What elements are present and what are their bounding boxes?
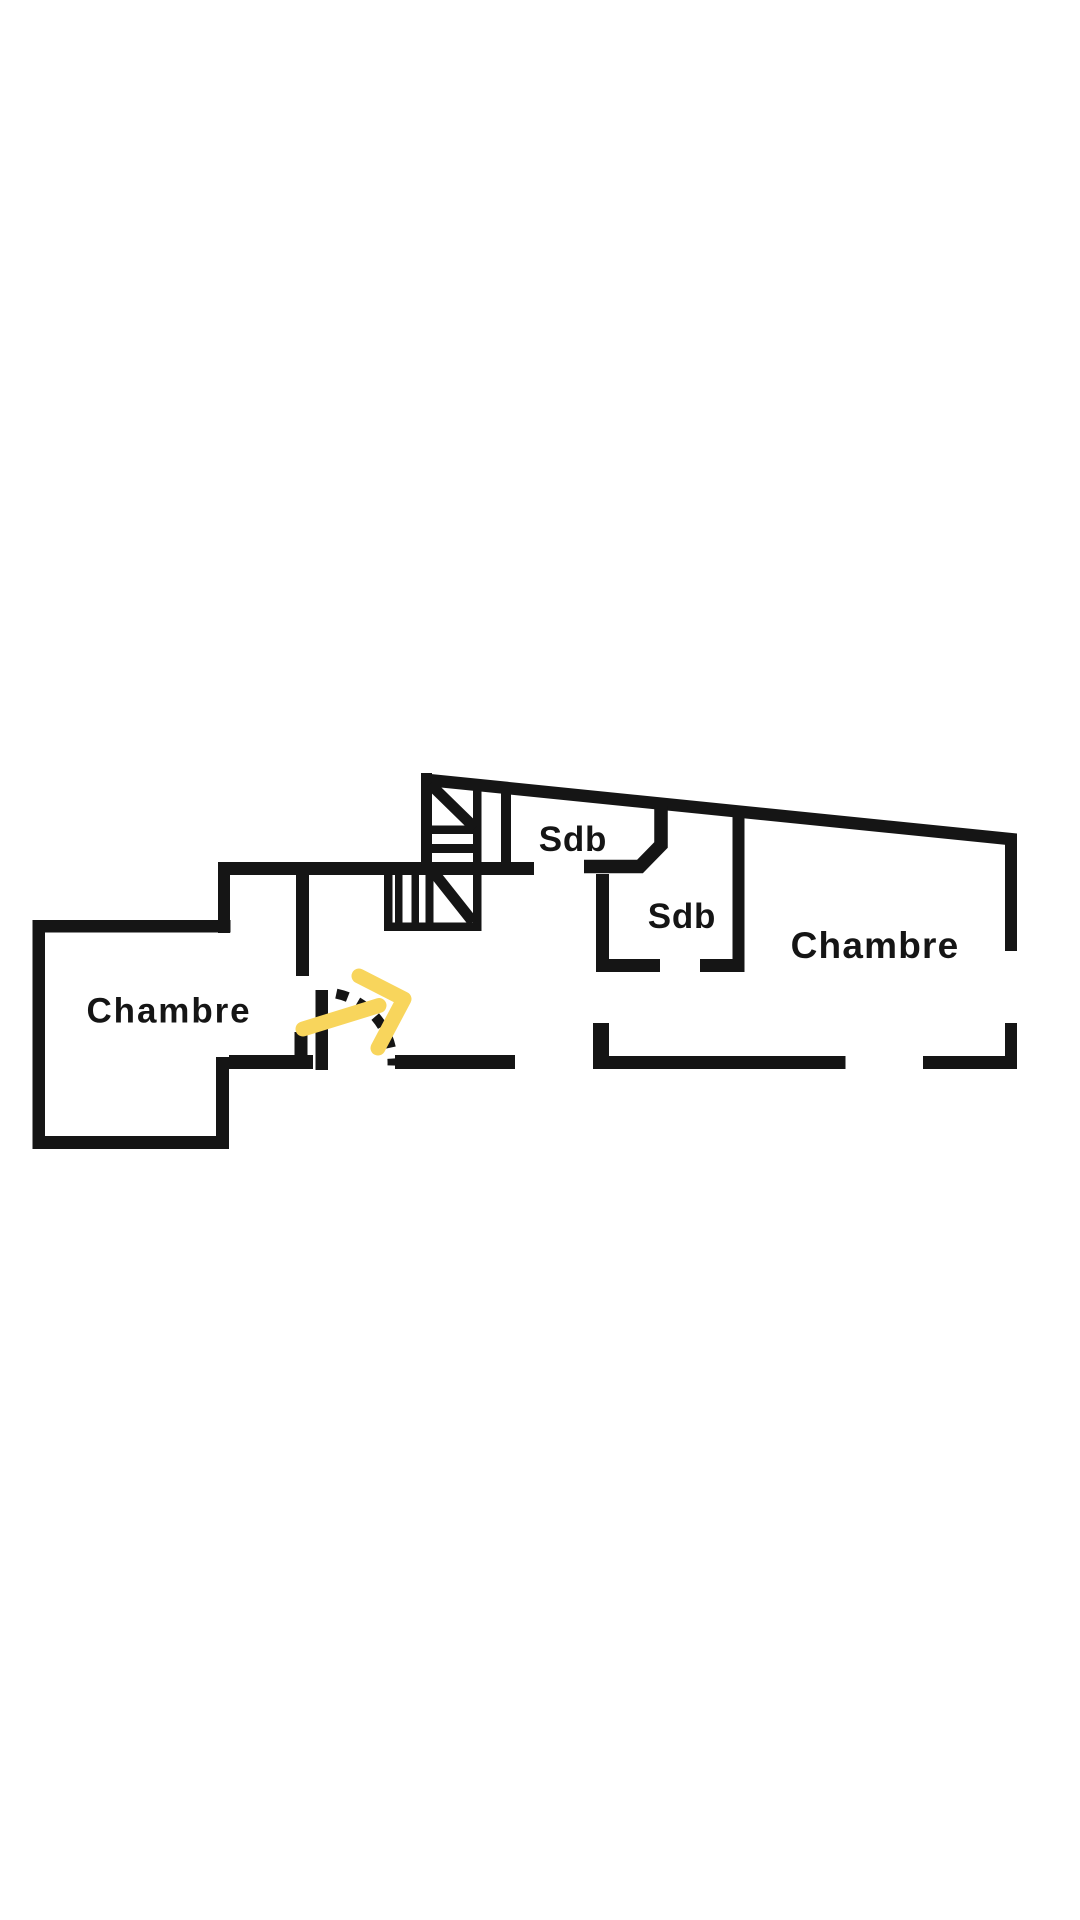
svg-text:Sdb: Sdb	[539, 820, 608, 859]
svg-text:Sdb: Sdb	[648, 897, 717, 936]
svg-text:Chambre: Chambre	[791, 925, 960, 966]
svg-text:Chambre: Chambre	[86, 992, 251, 1031]
